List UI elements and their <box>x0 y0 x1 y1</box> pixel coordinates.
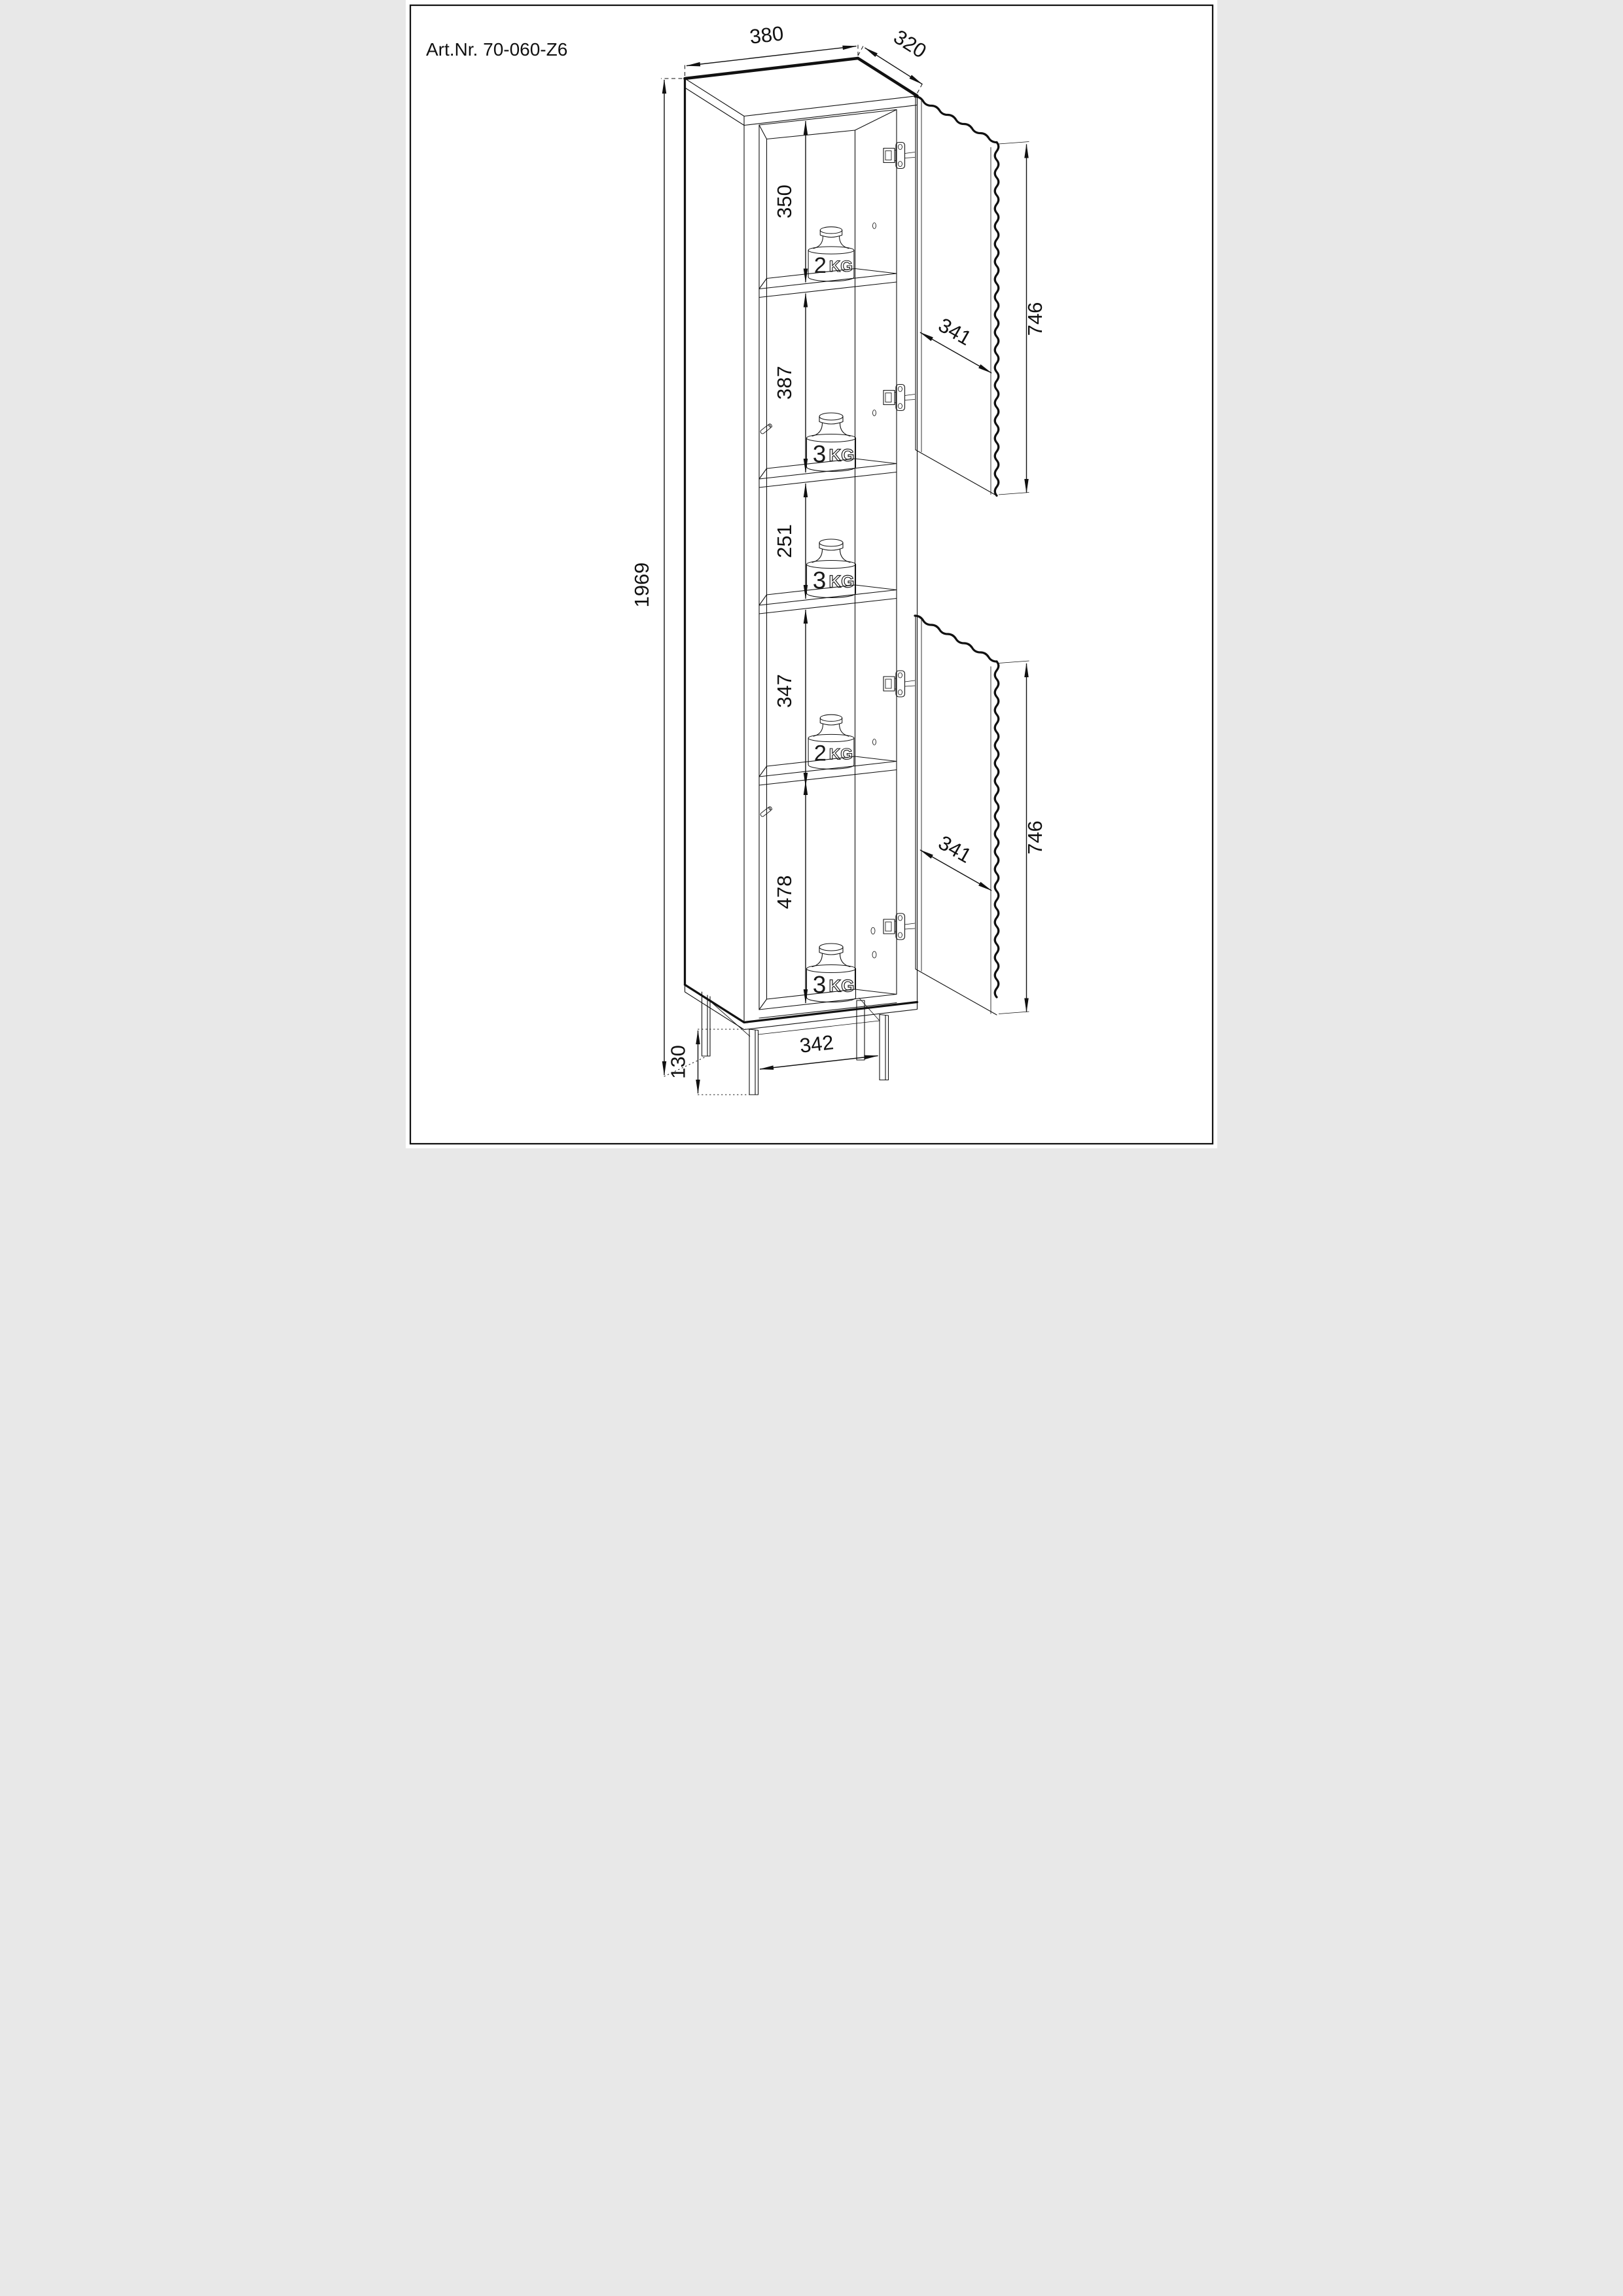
weight-unit: KG <box>829 976 855 996</box>
dim-label-gap1: 350 <box>773 185 796 219</box>
dim-label-gap5: 478 <box>773 875 796 910</box>
weight-unit: KG <box>829 572 855 592</box>
dim-label-gap2: 387 <box>773 366 796 400</box>
dim-label-door-height: 746 <box>1024 821 1046 855</box>
dim-label-height: 1969 <box>630 563 653 608</box>
dim-label-base-width: 342 <box>798 1031 834 1057</box>
dim-label-door-height: 746 <box>1024 302 1046 336</box>
weight-unit: KG <box>829 746 853 764</box>
weight-value: 2 <box>814 741 827 766</box>
dim-label-gap4: 347 <box>773 674 796 708</box>
drawing-page: Art.Nr. 70-060-Z6 <box>406 0 1217 1148</box>
paper <box>406 0 1217 1148</box>
weight-value: 3 <box>813 972 827 998</box>
weight-value: 2 <box>814 253 827 278</box>
assembly-diagram: Art.Nr. 70-060-Z6 <box>406 0 1217 1148</box>
weight-value: 3 <box>813 441 827 468</box>
dim-label-width: 380 <box>749 22 785 48</box>
dim-label-leg-height: 130 <box>667 1045 690 1079</box>
weight-unit: KG <box>829 446 855 465</box>
weight-value: 3 <box>813 567 827 594</box>
door-fluted-edge <box>995 143 999 496</box>
weight-unit: KG <box>829 258 853 275</box>
article-number-title: Art.Nr. 70-060-Z6 <box>426 39 567 60</box>
dim-label-gap3: 251 <box>773 524 796 558</box>
